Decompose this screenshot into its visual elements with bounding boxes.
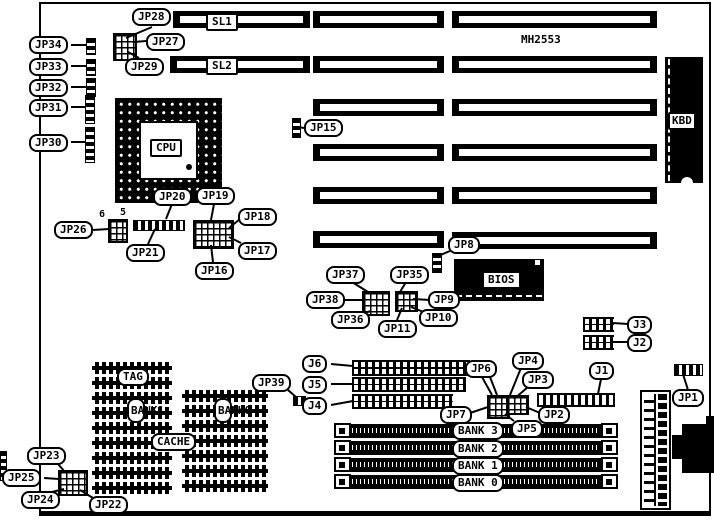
bank2-label: BANK 2 (452, 440, 504, 458)
cache-bank1-column-label: BANK1 (127, 398, 145, 423)
callout-j5: J5 (302, 376, 327, 394)
callout-pointer-lines (0, 0, 714, 520)
callout-jp20: JP20 (153, 188, 192, 206)
callout-jp10: JP10 (419, 309, 458, 327)
bank1-label: BANK 1 (452, 457, 504, 475)
callout-jp30: JP30 (29, 134, 68, 152)
callout-j1: J1 (589, 362, 614, 380)
pin-number-5: 5 (120, 207, 126, 218)
callout-jp37: JP37 (326, 266, 365, 284)
callout-jp1: JP1 (672, 389, 704, 407)
callout-jp32: JP32 (29, 79, 68, 97)
callout-jp17: JP17 (238, 242, 277, 260)
callout-j6: J6 (302, 355, 327, 373)
motherboard-diagram: CPU KBD BIOS (0, 0, 714, 520)
callout-jp2: JP2 (538, 406, 570, 424)
callout-jp24: JP24 (21, 491, 60, 509)
callout-jp26: JP26 (54, 221, 93, 239)
callout-jp19: JP19 (196, 187, 235, 205)
callout-jp34: JP34 (29, 36, 68, 54)
callout-jp3: JP3 (522, 371, 554, 389)
callout-jp23: JP23 (27, 447, 66, 465)
callout-jp29: JP29 (125, 58, 164, 76)
callout-j3: J3 (627, 316, 652, 334)
cpu-label: CPU (150, 139, 182, 157)
callout-jp18: JP18 (238, 208, 277, 226)
bank0-label: BANK 0 (452, 474, 504, 492)
cache-bank0-column-label: BANK0 (214, 398, 232, 423)
cache-label: CACHE (151, 433, 196, 451)
callout-jp36: JP36 (331, 311, 370, 329)
callout-jp38: JP38 (306, 291, 345, 309)
callout-jp33: JP33 (29, 58, 68, 76)
callout-jp9: JP9 (428, 291, 460, 309)
callout-j4: J4 (302, 397, 327, 415)
callout-jp6: JP6 (465, 360, 497, 378)
callout-jp15: JP15 (304, 119, 343, 137)
callout-jp11: JP11 (378, 320, 417, 338)
callout-jp31: JP31 (29, 99, 68, 117)
callout-jp27: JP27 (146, 33, 185, 51)
callout-jp22: JP22 (89, 496, 128, 514)
callout-jp21: JP21 (126, 244, 165, 262)
callout-jp16: JP16 (195, 262, 234, 280)
bios-label: BIOS (482, 271, 521, 289)
callout-jp25: JP25 (2, 469, 41, 487)
pin-number-6: 6 (99, 209, 105, 220)
callout-jp28: JP28 (132, 8, 171, 26)
tag-label: TAG (117, 368, 149, 386)
bank3-label: BANK 3 (452, 422, 504, 440)
callout-jp4: JP4 (512, 352, 544, 370)
sl2-label: SL2 (206, 57, 238, 75)
board-model: MH2553 (521, 34, 561, 46)
kbd-label: KBD (668, 112, 696, 130)
callout-jp35: JP35 (390, 266, 429, 284)
callout-jp39: JP39 (252, 374, 291, 392)
callout-j2: J2 (627, 334, 652, 352)
callout-jp8: JP8 (448, 236, 480, 254)
callout-jp5: JP5 (511, 420, 543, 438)
sl1-label: SL1 (206, 13, 238, 31)
